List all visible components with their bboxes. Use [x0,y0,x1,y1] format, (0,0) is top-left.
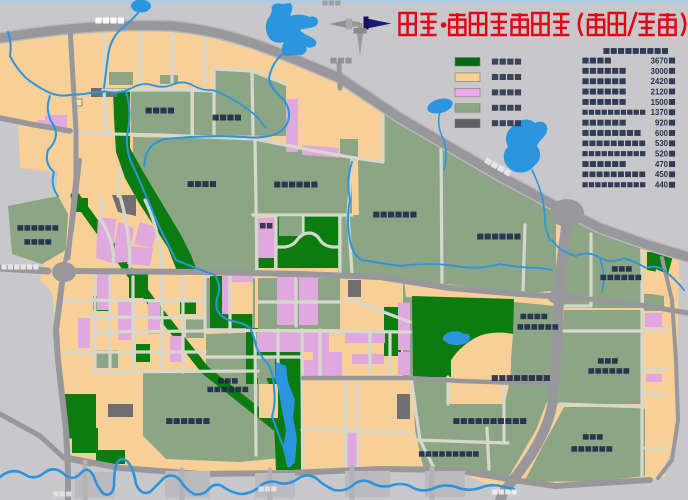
svg-text:470: 470 [655,160,669,169]
svg-text:3670: 3670 [651,56,669,65]
svg-text:530: 530 [655,139,669,148]
svg-text:920: 920 [655,119,669,128]
svg-text:450: 450 [655,170,669,179]
svg-text:440: 440 [655,181,669,190]
svg-text:520: 520 [655,150,669,159]
svg-text:2120: 2120 [651,88,669,97]
svg-text:2420: 2420 [651,77,669,86]
svg-text:1370: 1370 [651,108,669,117]
svg-text:3000: 3000 [651,67,669,76]
svg-text:1500: 1500 [651,98,669,107]
svg-text:600: 600 [655,129,669,138]
